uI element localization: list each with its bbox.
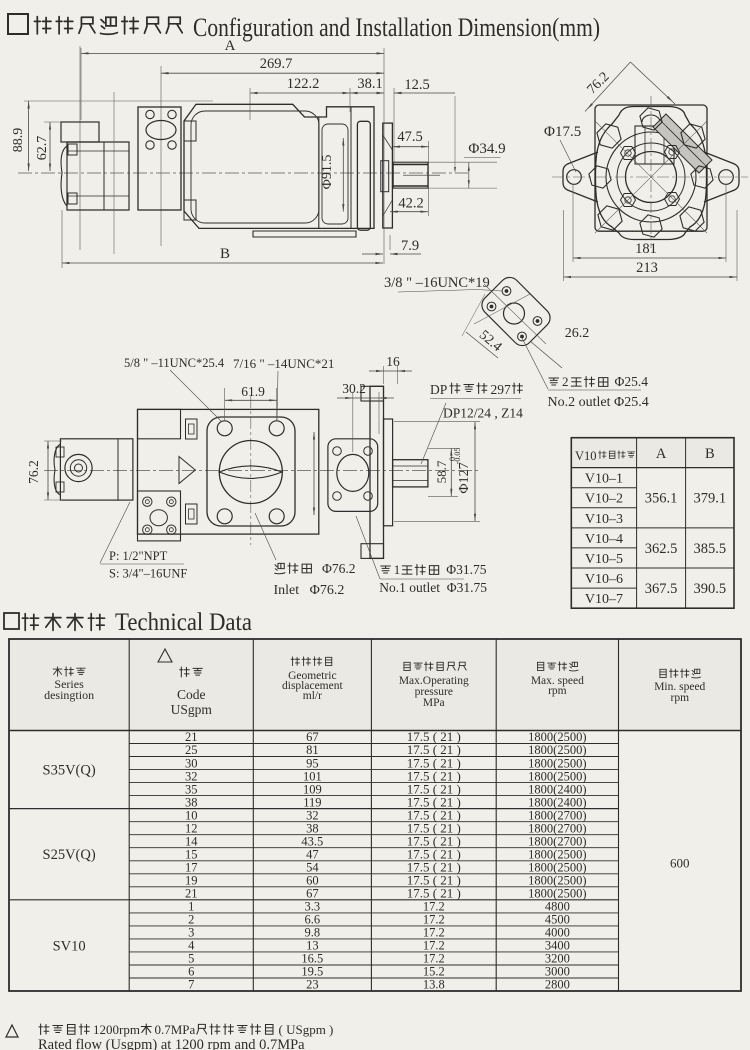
svg-text:95: 95 — [306, 756, 319, 770]
svg-text:17.2: 17.2 — [423, 939, 445, 953]
svg-text:14: 14 — [185, 834, 198, 848]
svg-text:S35V(Q): S35V(Q) — [43, 763, 96, 779]
svg-text:1800(2500): 1800(2500) — [528, 769, 586, 783]
svg-text:122.2: 122.2 — [287, 76, 320, 92]
svg-text:4: 4 — [188, 939, 195, 953]
svg-text:60: 60 — [306, 873, 319, 887]
svg-text:35: 35 — [185, 782, 198, 796]
svg-text:S25V(Q): S25V(Q) — [43, 847, 96, 863]
svg-text:V10–5: V10–5 — [585, 552, 623, 567]
svg-text:6.6: 6.6 — [305, 913, 321, 927]
svg-text:0.7MPa: 0.7MPa — [155, 1022, 196, 1037]
svg-text:119: 119 — [303, 795, 321, 809]
svg-text:101: 101 — [303, 769, 322, 783]
svg-text:S: 3/4"–16UNF: S: 3/4"–16UNF — [109, 567, 187, 581]
svg-text:19: 19 — [185, 873, 198, 887]
svg-text:2800: 2800 — [545, 978, 570, 992]
svg-text:3200: 3200 — [545, 952, 570, 966]
svg-text:12: 12 — [185, 821, 198, 835]
svg-text:58.7: 58.7 — [434, 460, 449, 483]
svg-text:19.5: 19.5 — [301, 965, 323, 979]
svg-text:17.2: 17.2 — [423, 926, 445, 940]
svg-text:88.9: 88.9 — [11, 128, 26, 153]
svg-text:17.2: 17.2 — [423, 952, 445, 966]
svg-text:3400: 3400 — [545, 939, 570, 953]
svg-text:181: 181 — [635, 241, 657, 257]
svg-text:V10–4: V10–4 — [585, 532, 623, 547]
svg-text:5: 5 — [188, 952, 194, 966]
svg-text:A: A — [656, 446, 667, 462]
svg-text:1800(2500): 1800(2500) — [528, 743, 586, 757]
svg-text:3000: 3000 — [545, 965, 570, 979]
svg-text:1: 1 — [394, 562, 401, 577]
svg-text:379.1: 379.1 — [693, 491, 726, 507]
svg-text:SV10: SV10 — [53, 938, 86, 954]
svg-text:47: 47 — [306, 847, 319, 861]
svg-text:47.5: 47.5 — [397, 129, 422, 145]
svg-text:desingtion: desingtion — [44, 688, 94, 702]
svg-text:67: 67 — [306, 730, 319, 744]
svg-text:62.7: 62.7 — [35, 136, 50, 161]
svg-text:1200rpm: 1200rpm — [93, 1022, 140, 1037]
svg-text:1800(2500): 1800(2500) — [528, 847, 586, 861]
svg-text:367.5: 367.5 — [645, 581, 678, 597]
svg-text:Rated flow (Usgpm) at 1200 rpm: Rated flow (Usgpm) at 1200 rpm and 0.7MP… — [38, 1037, 305, 1050]
svg-text:V10–1: V10–1 — [585, 472, 623, 487]
svg-text:1800(2700): 1800(2700) — [528, 821, 586, 835]
svg-text:B: B — [220, 246, 230, 262]
svg-text:5/8 " –11UNC*25.4: 5/8 " –11UNC*25.4 — [124, 356, 225, 370]
svg-text:61.9: 61.9 — [241, 384, 265, 399]
svg-text:1800(2700): 1800(2700) — [528, 834, 586, 848]
svg-text:Φ17.5: Φ17.5 — [544, 124, 581, 140]
svg-text:1: 1 — [188, 900, 194, 914]
svg-text:385.5: 385.5 — [693, 541, 726, 557]
svg-text:USgpm: USgpm — [171, 702, 213, 717]
svg-text:600: 600 — [670, 856, 690, 871]
svg-text:DP12/24 , Z14: DP12/24 , Z14 — [443, 406, 523, 421]
svg-text:P: 1/2"NPT: P: 1/2"NPT — [109, 549, 168, 563]
svg-text:54: 54 — [306, 860, 319, 874]
svg-text:9.8: 9.8 — [305, 926, 321, 940]
svg-text:2: 2 — [188, 913, 194, 927]
svg-text:Φ31.75: Φ31.75 — [446, 562, 486, 577]
svg-text:Φ91.5: Φ91.5 — [320, 155, 335, 190]
svg-text:4000: 4000 — [545, 926, 570, 940]
svg-text:16.5: 16.5 — [301, 952, 323, 966]
svg-text:rpm: rpm — [548, 685, 567, 697]
svg-text:ml/r: ml/r — [303, 690, 322, 702]
svg-text:38: 38 — [185, 795, 198, 809]
svg-text:38.1: 38.1 — [357, 76, 382, 92]
svg-text:V10–6: V10–6 — [585, 572, 623, 587]
svg-text:1800(2400): 1800(2400) — [528, 795, 586, 809]
svg-text:390.5: 390.5 — [693, 581, 726, 597]
svg-text:( USgpm ): ( USgpm ) — [279, 1022, 334, 1037]
svg-text:4500: 4500 — [545, 913, 570, 927]
svg-text:213: 213 — [636, 260, 658, 276]
svg-text:2: 2 — [562, 374, 569, 389]
svg-text:76.2: 76.2 — [26, 460, 41, 484]
svg-text:269.7: 269.7 — [260, 56, 293, 72]
svg-text:17: 17 — [185, 860, 198, 874]
svg-text:Φ34.9: Φ34.9 — [468, 141, 505, 157]
svg-text:356.1: 356.1 — [645, 491, 678, 507]
svg-text:15.2: 15.2 — [423, 965, 445, 979]
svg-text:No.1 outlet Φ31.75: No.1 outlet Φ31.75 — [379, 580, 487, 595]
svg-text:3.3: 3.3 — [305, 900, 321, 914]
svg-text:1800(2500): 1800(2500) — [528, 887, 586, 901]
svg-text:Φ25.4: Φ25.4 — [615, 374, 649, 389]
svg-text:1800(2500): 1800(2500) — [528, 873, 586, 887]
svg-text:MPa: MPa — [423, 697, 445, 709]
svg-text:7/16 " –14UNC*21: 7/16 " –14UNC*21 — [233, 356, 334, 371]
svg-text:Code: Code — [177, 687, 206, 702]
svg-text:V10–7: V10–7 — [585, 592, 623, 607]
svg-text:30.2: 30.2 — [342, 381, 366, 396]
svg-text:17.5 ( 21 ): 17.5 ( 21 ) — [407, 886, 461, 901]
svg-text:67: 67 — [306, 887, 319, 901]
svg-text:No.2 outlet Φ25.4: No.2 outlet Φ25.4 — [548, 395, 649, 410]
svg-text:81: 81 — [306, 743, 319, 757]
svg-text:7: 7 — [188, 978, 194, 992]
svg-text:17.2: 17.2 — [423, 900, 445, 914]
svg-text:rpm: rpm — [670, 692, 689, 704]
svg-text:1800(2700): 1800(2700) — [528, 808, 586, 822]
svg-text:7.9: 7.9 — [401, 238, 419, 254]
svg-text:32: 32 — [306, 808, 319, 822]
svg-text:6: 6 — [188, 965, 194, 979]
svg-text:17.2: 17.2 — [423, 913, 445, 927]
svg-text:3: 3 — [188, 926, 194, 940]
svg-text:Φ127: Φ127 — [457, 462, 472, 493]
svg-text:Φ76.2: Φ76.2 — [322, 561, 356, 576]
svg-text:109: 109 — [303, 782, 322, 796]
svg-text:21: 21 — [185, 887, 198, 901]
svg-text:15: 15 — [185, 847, 198, 861]
svg-text:1800(2400): 1800(2400) — [528, 782, 586, 796]
svg-text:16: 16 — [386, 354, 400, 369]
svg-text:1800(2500): 1800(2500) — [528, 860, 586, 874]
svg-text:4800: 4800 — [545, 900, 570, 914]
svg-text:12.5: 12.5 — [404, 77, 429, 93]
svg-text:362.5: 362.5 — [645, 541, 678, 557]
svg-text:10: 10 — [185, 808, 198, 822]
svg-text:1800(2500): 1800(2500) — [528, 730, 586, 744]
svg-text:A: A — [225, 38, 236, 54]
svg-text:Inlet Φ76.2: Inlet Φ76.2 — [274, 583, 345, 598]
svg-text:Configuration and Installation: Configuration and Installation Dimension… — [193, 13, 600, 42]
svg-text:43.5: 43.5 — [301, 834, 323, 848]
svg-text:Technical Data: Technical Data — [115, 609, 252, 636]
svg-text:13.8: 13.8 — [423, 978, 445, 992]
svg-text:V10–3: V10–3 — [585, 512, 623, 527]
svg-text:13: 13 — [306, 939, 319, 953]
svg-text:3/8 " –16UNC*19: 3/8 " –16UNC*19 — [384, 275, 490, 291]
svg-text:V10–2: V10–2 — [585, 492, 623, 507]
svg-text:23: 23 — [306, 978, 319, 992]
svg-text:21: 21 — [185, 730, 198, 744]
svg-text:B: B — [705, 446, 715, 462]
svg-text:25: 25 — [185, 743, 198, 757]
svg-text:32: 32 — [185, 769, 198, 783]
svg-text:42.2: 42.2 — [398, 196, 423, 212]
svg-text:1800(2500): 1800(2500) — [528, 756, 586, 770]
svg-text:26.2: 26.2 — [565, 326, 590, 341]
svg-text:30: 30 — [185, 756, 198, 770]
svg-text:38: 38 — [306, 821, 319, 835]
svg-text:DP: DP — [430, 382, 447, 397]
svg-text:0: 0 — [448, 457, 457, 461]
svg-text:V10: V10 — [575, 449, 597, 463]
svg-text:297: 297 — [491, 382, 512, 397]
